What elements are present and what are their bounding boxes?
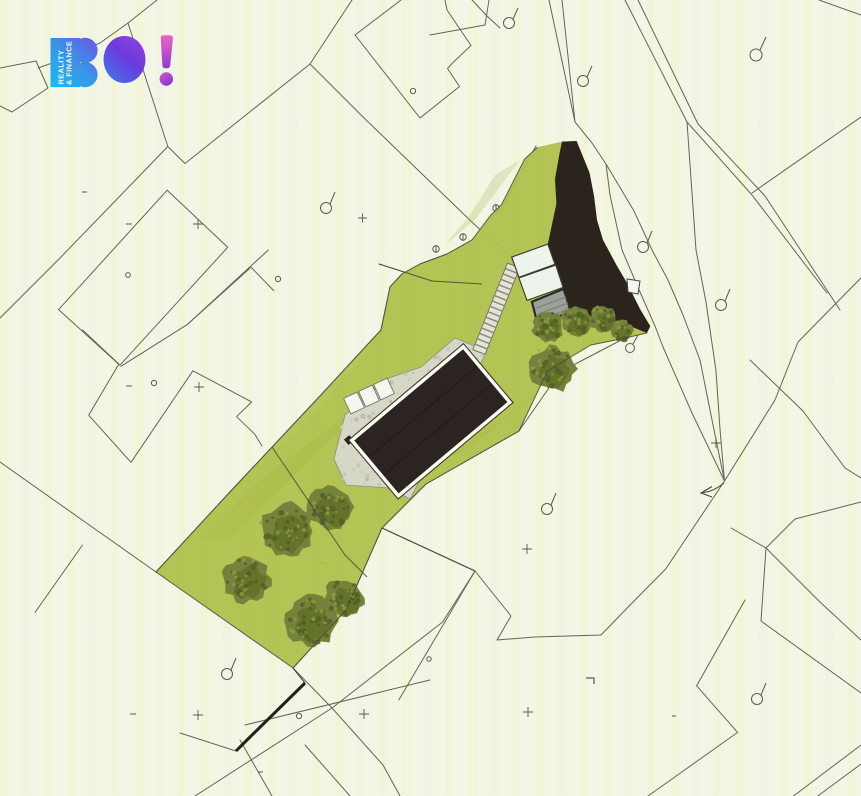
svg-text:& FINANCE: & FINANCE bbox=[65, 41, 74, 85]
